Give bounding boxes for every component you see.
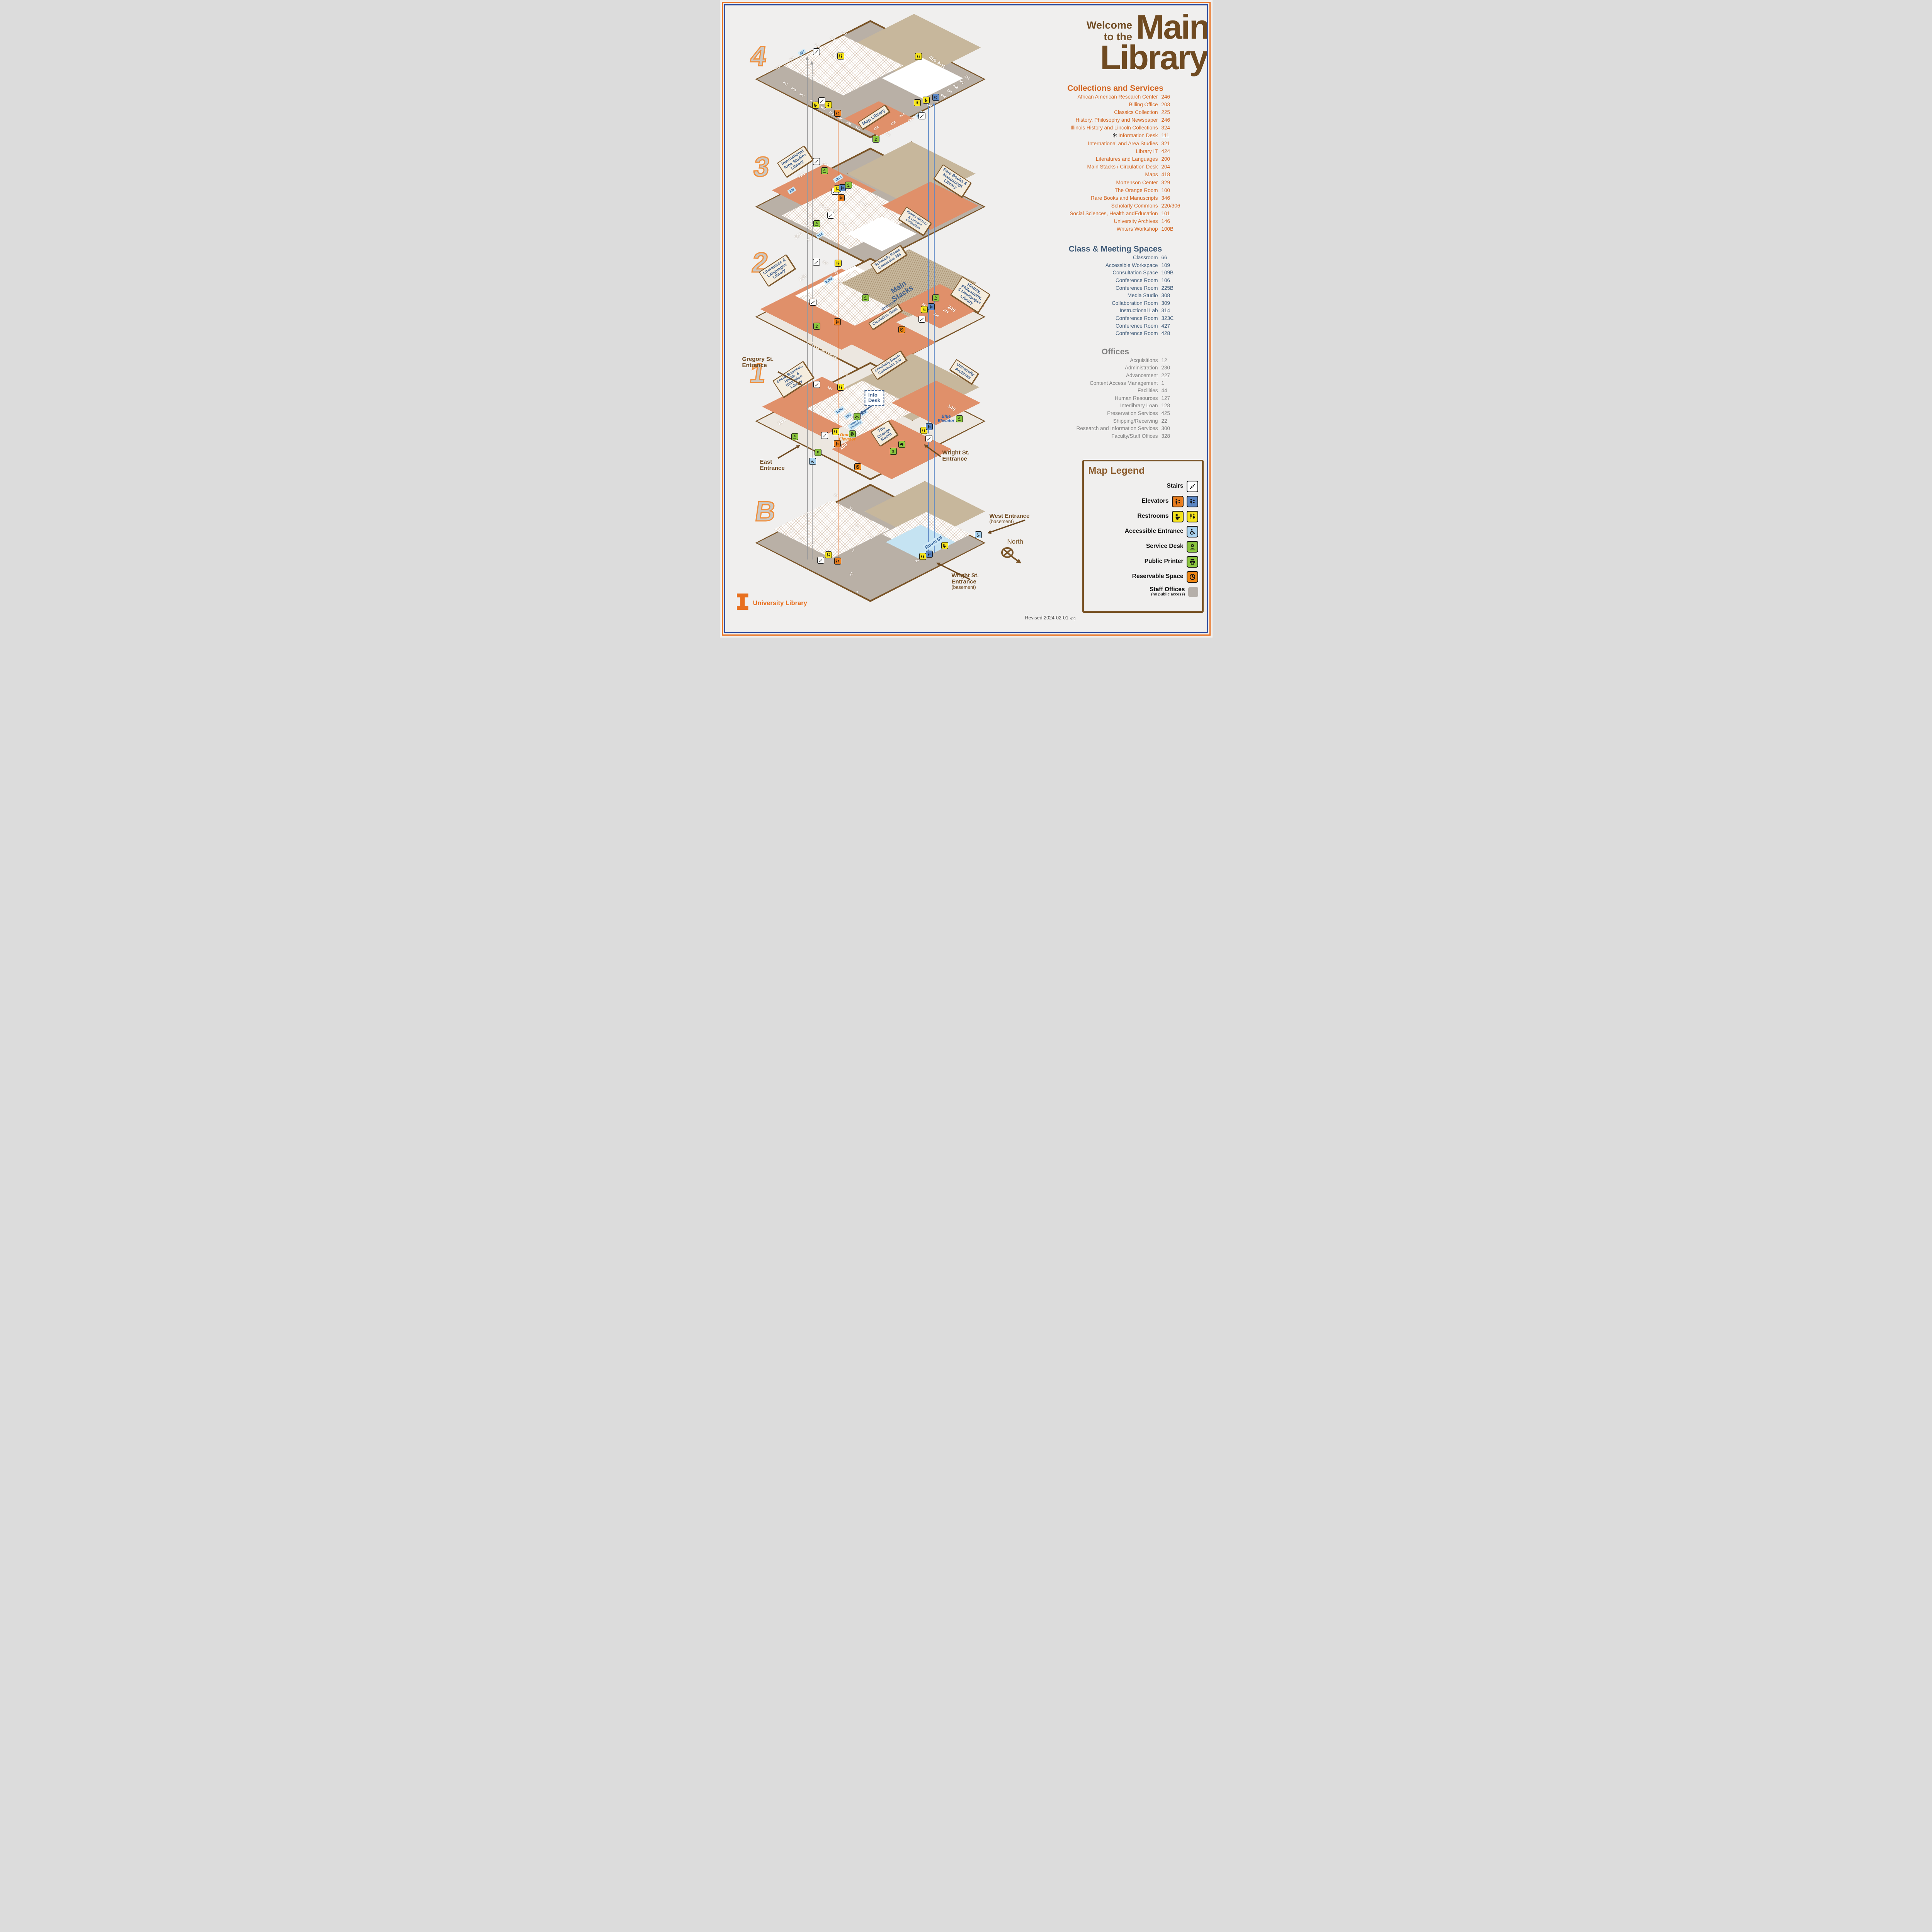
service-name: Consultation Space	[1016, 269, 1158, 277]
list-row: Maps418	[1016, 171, 1209, 179]
legend-title: Map Legend	[1088, 465, 1198, 476]
title-library: Library	[1016, 41, 1209, 74]
room-number: 246	[1162, 93, 1170, 101]
stairs-icon	[818, 97, 825, 104]
room-number: 146	[1162, 218, 1170, 225]
restroom-icon	[835, 260, 842, 267]
service-desk-icon	[821, 167, 828, 174]
service-name: Social Sciences, Health andEducation	[1016, 210, 1158, 218]
legend-label: Service Desk	[1146, 543, 1184, 549]
entrance-label: East Entrance	[760, 459, 785, 471]
toilet-icon	[923, 97, 930, 104]
list-row: Acquisitions12	[1016, 357, 1209, 364]
brand-text: University Library	[753, 600, 807, 607]
room-number: 101	[1162, 210, 1170, 218]
orange-elevator-icon	[834, 318, 841, 325]
list-row: Shipping/Receiving22	[1016, 417, 1209, 425]
accessible-entrance-icon	[975, 531, 982, 538]
list-row: Collaboration Room309	[1016, 299, 1209, 307]
legend-row: Staff Offices(no public access)	[1088, 584, 1198, 599]
restroom-icon	[832, 428, 839, 435]
service-name: Instructional Lab	[1016, 307, 1158, 315]
room-number: 300	[1162, 425, 1170, 432]
legend-label: Accessible Entrance	[1125, 528, 1184, 534]
service-desk-icon	[956, 415, 963, 422]
room-number: 227	[1162, 372, 1170, 379]
room-label: 306	[793, 231, 803, 240]
blue-elevator-icon	[926, 551, 933, 558]
map-legend: Map Legend StairsElevatorsRestroomsAcces…	[1082, 460, 1204, 613]
room-number: 324	[1162, 124, 1170, 132]
room-number: 329	[1162, 179, 1170, 187]
service-desk-icon	[813, 323, 820, 330]
room-number: 323C	[1162, 315, 1174, 322]
room-number: 220/306	[1162, 202, 1180, 210]
service-desk-icon	[862, 294, 869, 301]
restroom-icon	[837, 53, 844, 60]
list-row: Information Desk111	[1016, 132, 1209, 140]
class-meeting-header: Class & Meeting Spaces	[1031, 245, 1200, 254]
service-name: Research and Information Services	[1016, 425, 1158, 432]
legend-label: Public Printer	[1145, 558, 1184, 565]
service-name: Mortenson Center	[1016, 179, 1158, 187]
blue-elevator-icon	[928, 303, 935, 310]
stairs-icon	[813, 48, 820, 55]
room-number: 106	[1162, 277, 1170, 284]
offices-header: Offices	[1031, 347, 1200, 357]
room-number: 230	[1162, 364, 1170, 372]
list-row: Human Resources127	[1016, 395, 1209, 402]
service-name: Conference Room	[1016, 277, 1158, 284]
entrance-label: Wright St. Entrance(basement)	[952, 573, 979, 590]
list-row: Administration230	[1016, 364, 1209, 372]
service-name: Faculty/Staff Offices	[1016, 432, 1158, 440]
legend-row: Public Printer	[1088, 554, 1198, 569]
room-number: 424	[1162, 148, 1170, 155]
restroom-icon	[1187, 511, 1198, 522]
room-label: 225	[798, 273, 808, 282]
list-row: Media Studio308	[1016, 292, 1209, 299]
service-name: Human Resources	[1016, 395, 1158, 402]
room-number: 321	[1162, 140, 1170, 148]
list-row: Advancement227	[1016, 372, 1209, 379]
entrance-note: (basement)	[952, 585, 979, 590]
restroom-men-icon	[914, 99, 921, 106]
list-row: Conference Room428	[1016, 330, 1209, 337]
blue-elevator-icon	[1187, 496, 1198, 507]
legend-label: Elevators	[1142, 498, 1169, 504]
file-ext: -jpg	[1070, 616, 1076, 620]
service-name: Conference Room	[1016, 284, 1158, 292]
room-number: 100B	[1162, 225, 1174, 233]
room-number: 427	[1162, 322, 1170, 330]
service-desk-icon	[813, 220, 820, 227]
list-row: Literatures and Languages200	[1016, 155, 1209, 163]
accessible-entrance-icon	[809, 458, 816, 465]
elevator-shaft-line	[838, 116, 838, 560]
stairs-icon	[821, 432, 828, 439]
room-number: 309	[1162, 299, 1170, 307]
shaft-arrowhead	[810, 59, 813, 65]
room-number: 346	[1162, 194, 1170, 202]
service-desk-icon	[872, 136, 879, 143]
list-row: History, Philosophy and Newspaper246	[1016, 116, 1209, 124]
stairs-icon	[813, 381, 820, 388]
service-name: Conference Room	[1016, 330, 1158, 337]
list-row: Main Stacks / Circulation Desk204	[1016, 163, 1209, 171]
list-row: Preservation Services425	[1016, 410, 1209, 417]
list-row: Illinois History and Lincoln Collections…	[1016, 124, 1209, 132]
room-number: 204	[1162, 163, 1170, 171]
room-number: 200	[1162, 155, 1170, 163]
service-name: Writers Workshop	[1016, 225, 1158, 233]
service-desk-icon	[791, 433, 798, 440]
service-name: Classroom	[1016, 254, 1158, 262]
list-row: Conference Room427	[1016, 322, 1209, 330]
room-number: 225	[1162, 109, 1170, 116]
list-row: Rare Books and Manuscripts346	[1016, 194, 1209, 202]
service-desk-icon	[845, 182, 852, 189]
collections-header: Collections and Services	[1031, 84, 1200, 93]
compass-icon	[999, 546, 1026, 566]
toilet-icon	[941, 542, 948, 549]
service-name: Interlibrary Loan	[1016, 402, 1158, 410]
list-row: Faculty/Staff Offices328	[1016, 432, 1209, 440]
stairs-icon	[918, 316, 925, 323]
service-name: The Orange Room	[1016, 187, 1158, 194]
legend-note: (no public access)	[1150, 593, 1185, 597]
service-name: University Archives	[1016, 218, 1158, 225]
service-name: International and Area Studies	[1016, 140, 1158, 148]
room-number: 425	[1162, 410, 1170, 417]
legend-label: Stairs	[1167, 483, 1183, 489]
entrance-note: (basement)	[990, 519, 1030, 524]
legend-row: Restrooms	[1088, 509, 1198, 524]
elevator-shaft-line	[812, 63, 813, 560]
legend-label: Reservable Space	[1132, 573, 1184, 580]
collections-list: African American Research Center246Billi…	[1016, 93, 1209, 233]
offices-list: Acquisitions12Administration230Advanceme…	[1016, 357, 1209, 440]
room-number: 418	[1162, 171, 1170, 179]
list-row: Mortenson Center329	[1016, 179, 1209, 187]
legend-row: Accessible Entrance	[1088, 524, 1198, 539]
stairs-icon	[810, 299, 816, 306]
shaft-arrowhead	[806, 54, 809, 60]
stairs-icon	[817, 557, 824, 564]
legend-row: Reservable Space	[1088, 569, 1198, 584]
floor-number-3: 3	[752, 153, 771, 181]
room-number: 203	[1162, 101, 1170, 109]
list-row: Instructional Lab314	[1016, 307, 1209, 315]
reservable-space-icon	[898, 326, 905, 333]
blue-elevator-icon	[932, 94, 939, 101]
public-printer-icon	[1187, 556, 1198, 568]
room-number: 328	[1162, 432, 1170, 440]
room-number: 308	[1162, 292, 1170, 299]
service-desk-icon	[1187, 541, 1198, 553]
service-name: Main Stacks / Circulation Desk	[1016, 163, 1158, 171]
room-number: 44	[1162, 387, 1167, 395]
list-row: Consultation Space109B	[1016, 269, 1209, 277]
room-number: 428	[1162, 330, 1170, 337]
floor-number-B: B	[753, 498, 777, 526]
stairs-icon	[813, 259, 820, 266]
room-number: 109B	[1162, 269, 1174, 277]
elevator-shaft-line	[934, 104, 935, 553]
north-compass: North	[999, 538, 1026, 568]
stairs-icon	[918, 112, 925, 119]
library-map-poster: 4413423427429435437425419411409407405403…	[720, 0, 1213, 638]
service-name: Rare Books and Manuscripts	[1016, 194, 1158, 202]
room-number: 66	[1162, 254, 1167, 262]
stairs-icon	[827, 212, 834, 219]
room-number: 225B	[1162, 284, 1174, 292]
public-printer-icon	[849, 430, 856, 437]
restroom-icon	[915, 53, 922, 60]
service-name: Library IT	[1016, 148, 1158, 155]
restroom-icon	[919, 553, 926, 560]
room-number: 246	[1162, 116, 1170, 124]
orange-elevator-icon	[834, 110, 841, 117]
service-name: Classics Collection	[1016, 109, 1158, 116]
list-row: Research and Information Services300	[1016, 425, 1209, 432]
elevator-shaft-line	[928, 100, 929, 553]
legend-row: Service Desk	[1088, 539, 1198, 554]
info-asterisk-icon	[1112, 132, 1117, 140]
info-desk-icon	[854, 413, 861, 420]
stairs-icon	[925, 435, 932, 442]
list-row: Classics Collection225	[1016, 109, 1209, 116]
staff-offices-swatch	[1188, 587, 1198, 597]
service-name: Billing Office	[1016, 101, 1158, 109]
stairs-icon	[813, 158, 820, 165]
revised-date: Revised 2024-02-01 -jpg	[1025, 615, 1076, 621]
service-name: Preservation Services	[1016, 410, 1158, 417]
restroom-women-icon	[825, 101, 832, 108]
info-desk-callout: Info Desk	[864, 390, 884, 406]
info-column: Welcome to the Main Library Collections …	[1016, 12, 1209, 440]
legend-label: Staff Offices(no public access)	[1150, 587, 1185, 597]
service-name: Shipping/Receiving	[1016, 417, 1158, 425]
list-row: Writers Workshop100B	[1016, 225, 1209, 233]
service-name: History, Philosophy and Newspaper	[1016, 116, 1158, 124]
list-row: Social Sciences, Health andEducation101	[1016, 210, 1209, 218]
list-row: Classroom66	[1016, 254, 1209, 262]
service-name: Literatures and Languages	[1016, 155, 1158, 163]
list-row: Content Access Management1	[1016, 379, 1209, 387]
service-desk-icon	[932, 294, 939, 301]
service-name: Administration	[1016, 364, 1158, 372]
list-row: Facilities44	[1016, 387, 1209, 395]
orange-elevator-icon	[1172, 496, 1184, 507]
service-name: Conference Room	[1016, 322, 1158, 330]
stairs-icon	[1187, 481, 1198, 492]
service-name: Scholarly Commons	[1016, 202, 1158, 210]
floor-number-4: 4	[748, 43, 768, 70]
room-number: 128	[1162, 402, 1170, 410]
service-name: Maps	[1016, 171, 1158, 179]
room-number: 109	[1162, 262, 1170, 269]
list-row: International and Area Studies321	[1016, 140, 1209, 148]
list-row: University Archives146	[1016, 218, 1209, 225]
accessible-entrance-icon	[1187, 526, 1198, 537]
reservable-space-icon	[1187, 571, 1198, 583]
room-number: 22	[1162, 417, 1167, 425]
restroom-icon	[837, 384, 844, 391]
service-name: Content Access Management	[1016, 379, 1158, 387]
service-desk-icon	[815, 449, 821, 456]
entrance-label: Gregory St. Entrance	[742, 356, 774, 369]
room-number: 127	[1162, 395, 1170, 402]
class-meeting-list: Classroom66Accessible Workspace109Consul…	[1016, 254, 1209, 337]
room-label: 227	[822, 260, 828, 266]
title-welcome: Welcome	[1087, 19, 1132, 31]
restroom-icon	[921, 306, 928, 313]
list-row: Library IT424	[1016, 148, 1209, 155]
room-number: 111	[1162, 132, 1170, 139]
blue-elevator-icon	[926, 423, 933, 430]
service-name: Collaboration Room	[1016, 299, 1158, 307]
list-row: Conference Room106	[1016, 277, 1209, 284]
service-name: Facilities	[1016, 387, 1158, 395]
entrance-label: Wright St. Entrance	[942, 450, 970, 462]
orange-elevator-icon	[838, 194, 845, 201]
legend-label: Restrooms	[1138, 513, 1169, 519]
room-number: 314	[1162, 307, 1170, 315]
service-name: Media Studio	[1016, 292, 1158, 299]
service-desk-icon	[890, 448, 897, 455]
restroom-icon	[825, 551, 832, 558]
public-printer-icon	[898, 441, 905, 448]
legend-row: Elevators	[1088, 494, 1198, 509]
service-name: Advancement	[1016, 372, 1158, 379]
orange-elevator-icon	[834, 440, 841, 447]
elevator-shaft-line	[807, 58, 808, 560]
list-row: Scholarly Commons220/306	[1016, 202, 1209, 210]
room-number: 100	[1162, 187, 1170, 194]
service-name: Accessible Workspace	[1016, 262, 1158, 269]
service-name: African American Research Center	[1016, 93, 1158, 101]
service-name: Illinois History and Lincoln Collections	[1016, 124, 1158, 132]
list-row: Billing Office203	[1016, 101, 1209, 109]
north-label: North	[1007, 538, 1026, 546]
list-row: Accessible Workspace109	[1016, 262, 1209, 269]
entrance-label: West Entrance(basement)	[990, 513, 1030, 524]
service-name: Acquisitions	[1016, 357, 1158, 364]
legend-row: Stairs	[1088, 479, 1198, 494]
map-text-label: Blue Elevator	[938, 415, 954, 423]
room-number: 12	[1162, 357, 1167, 364]
list-row: African American Research Center246	[1016, 93, 1209, 101]
list-row: Interlibrary Loan128	[1016, 402, 1209, 410]
toilet-icon	[1172, 511, 1184, 522]
list-row: Conference Room225B	[1016, 284, 1209, 292]
room-number: 1	[1162, 379, 1165, 387]
service-name: Conference Room	[1016, 315, 1158, 322]
service-name: Information Desk	[1016, 132, 1158, 140]
list-row: The Orange Room100	[1016, 187, 1209, 194]
reservable-space-icon	[854, 463, 861, 470]
list-row: Conference Room323C	[1016, 315, 1209, 322]
orange-elevator-icon	[834, 558, 841, 565]
